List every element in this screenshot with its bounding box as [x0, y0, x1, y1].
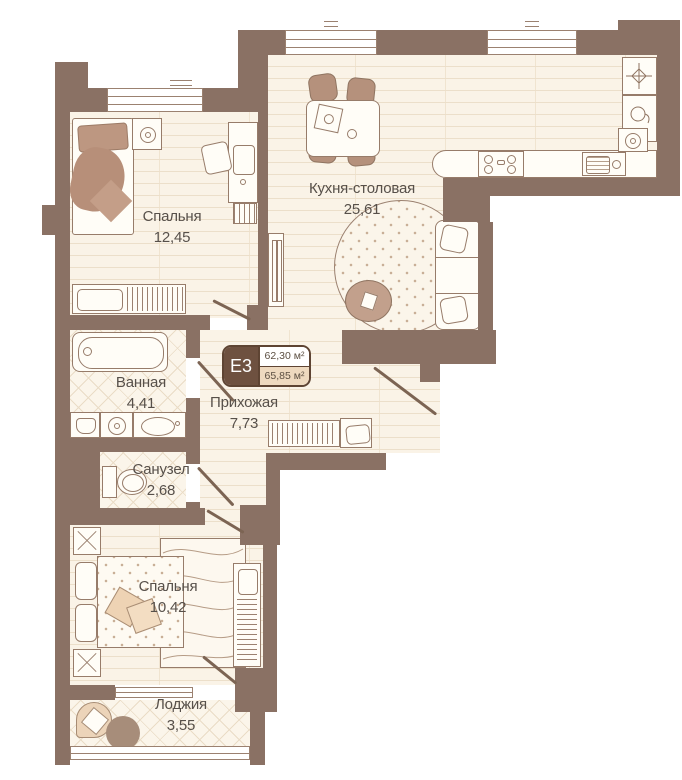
wall-segment — [420, 364, 440, 382]
wall-segment — [186, 330, 200, 358]
nightstand — [73, 527, 101, 555]
unit-badge: E3 62,30 м² 65,85 м² — [222, 345, 311, 387]
placemat — [314, 104, 344, 134]
wall-segment — [266, 453, 386, 470]
room-label-bedroom1: Спальня 12,45 — [143, 206, 202, 248]
wardrobe — [72, 284, 186, 314]
sofa — [435, 220, 481, 330]
window-tick — [525, 21, 539, 27]
room-area: 10,42 — [139, 597, 198, 618]
bath-sink — [70, 412, 100, 438]
plate — [323, 113, 335, 125]
desk — [228, 122, 258, 203]
wall-segment — [55, 452, 100, 508]
wall-segment — [478, 222, 493, 345]
wall-shelf — [268, 233, 284, 307]
window — [285, 30, 377, 55]
wall-segment — [377, 30, 487, 55]
hall-bench — [340, 418, 372, 448]
wall-segment — [342, 330, 496, 364]
window-tick — [170, 80, 192, 86]
wall-segment — [443, 196, 490, 222]
room-name: Спальня — [143, 206, 202, 227]
hall-wardrobe — [268, 420, 340, 447]
room-area: 25,61 — [309, 199, 415, 220]
cup — [347, 129, 357, 139]
kitchen-sink — [582, 152, 626, 176]
room-name: Прихожая — [210, 392, 278, 413]
wall-segment — [55, 85, 70, 765]
wall-segment — [250, 712, 265, 765]
desk-item — [240, 179, 246, 185]
wall-segment — [55, 438, 200, 452]
bed-pillow — [75, 562, 97, 600]
wardrobe — [233, 563, 261, 667]
fan-icon — [623, 58, 656, 94]
nightstand — [132, 118, 162, 150]
window — [107, 88, 203, 112]
unit-area-living: 62,30 м² — [260, 347, 309, 367]
room-label-kitchen: Кухня-столовая 25,61 — [309, 178, 415, 220]
wall-segment — [235, 668, 277, 712]
room-area: 3,55 — [155, 715, 207, 736]
room-label-wc: Санузел 2,68 — [132, 459, 189, 501]
room-label-bedroom2: Спальня 10,42 — [139, 576, 198, 618]
wall-segment — [240, 505, 280, 545]
radiator — [233, 203, 257, 224]
washer-dot — [114, 423, 120, 429]
faucet — [175, 421, 180, 426]
vanity-sink — [133, 412, 186, 438]
room-label-hallway: Прихожая 7,73 — [210, 392, 278, 434]
toilet-tank — [102, 466, 117, 498]
drain — [83, 347, 92, 356]
room-name: Спальня — [139, 576, 198, 597]
floor-plan: Спальня 12,45 Кухня-столовая 25,61 Ванна… — [0, 0, 682, 780]
wall-segment — [258, 112, 268, 318]
wall-segment — [55, 508, 205, 525]
room-name: Санузел — [132, 459, 189, 480]
bathtub — [72, 332, 168, 372]
unit-area-total: 65,85 м² — [260, 367, 309, 386]
drum-center — [630, 138, 636, 144]
window — [487, 30, 577, 55]
wall-segment — [657, 30, 680, 196]
room-name: Лоджия — [155, 694, 207, 715]
stove — [478, 151, 524, 177]
appliance — [618, 128, 648, 152]
wall-segment — [238, 30, 285, 55]
room-area: 4,41 — [116, 393, 166, 414]
side-table — [106, 716, 140, 750]
room-area: 7,73 — [210, 413, 278, 434]
nightstand — [73, 649, 101, 677]
faucet — [612, 160, 621, 169]
room-label-bathroom: Ванная 4,41 — [116, 372, 166, 414]
loggia-glazing — [70, 746, 250, 760]
coffee-table — [345, 280, 392, 322]
burner — [507, 155, 516, 164]
unit-code: E3 — [224, 347, 260, 385]
wall-segment — [577, 30, 622, 55]
room-area: 12,45 — [143, 227, 202, 248]
room-name: Ванная — [116, 372, 166, 393]
burner — [507, 165, 516, 174]
washing-machine — [100, 412, 133, 438]
bed-pillow — [75, 604, 97, 642]
room-name: Кухня-столовая — [309, 178, 415, 199]
room-area: 2,68 — [132, 480, 189, 501]
lamp-center — [145, 132, 151, 138]
vent-shaft — [622, 57, 657, 95]
wall-segment — [55, 315, 210, 330]
window-tick — [324, 21, 338, 27]
wall-segment — [443, 178, 680, 196]
wall-segment — [263, 545, 277, 685]
burner — [484, 165, 493, 174]
wall-segment — [42, 205, 58, 235]
room-label-loggia: Лоджия 3,55 — [155, 694, 207, 736]
wall-segment — [55, 685, 115, 700]
burner — [484, 155, 493, 164]
